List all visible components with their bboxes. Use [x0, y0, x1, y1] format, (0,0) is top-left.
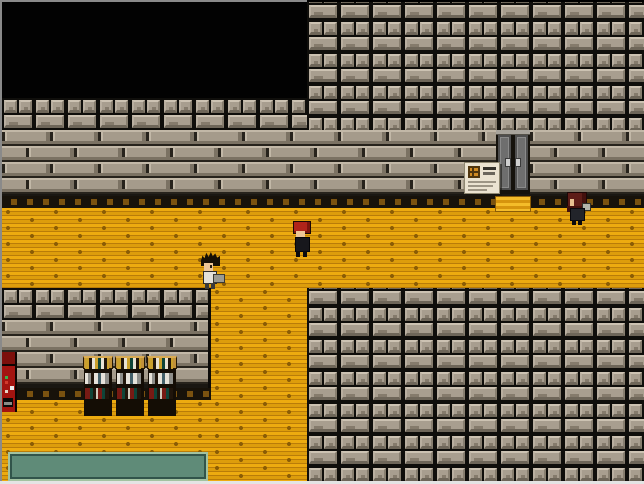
sign-text-line	[483, 172, 495, 175]
double-door[interactable]	[496, 130, 530, 194]
npc-long-dark-red-hair[interactable]	[565, 192, 590, 227]
book-row	[149, 373, 173, 384]
sign-text-line	[468, 189, 487, 191]
book-row	[117, 358, 141, 369]
book-row	[85, 388, 109, 399]
bookshelf[interactable]	[115, 356, 145, 416]
vending-label	[10, 386, 14, 390]
sign-text-line	[468, 181, 496, 183]
door-handle-icon	[515, 158, 521, 167]
book-row	[149, 358, 173, 369]
wood-floor-hallway	[2, 208, 644, 288]
wood-floor-corridor	[211, 288, 307, 481]
book-row	[149, 388, 173, 399]
notice-board[interactable]	[464, 162, 500, 194]
green-table[interactable]	[8, 452, 208, 481]
baseboard-main	[2, 196, 644, 208]
window-border-top	[0, 0, 307, 2]
book-row	[85, 373, 109, 384]
npc-leg	[211, 283, 215, 289]
npc-leg	[572, 220, 576, 225]
wall-top-tiles-left	[2, 98, 307, 130]
ceiling-tiles-bottom-right	[307, 288, 644, 481]
npc-leg	[296, 251, 300, 257]
book-row	[117, 388, 141, 399]
npc-red-hair[interactable]	[291, 221, 312, 258]
npc-eye	[210, 265, 212, 268]
wall-top-tiles-bottom-left	[2, 288, 211, 320]
npc-face	[570, 199, 574, 206]
green-led-icon	[5, 376, 8, 379]
brick-wall-main	[2, 130, 644, 196]
bookshelf[interactable]	[147, 356, 177, 416]
game-screen	[0, 0, 644, 484]
npc-spiky-black-hair[interactable]	[199, 252, 224, 290]
sign-text-line	[483, 167, 496, 170]
vending-tray	[4, 402, 12, 405]
door-handle-icon	[505, 158, 511, 167]
door-mat	[495, 196, 531, 212]
npc-leg	[303, 251, 307, 257]
ceiling-tiles-top-right	[307, 2, 644, 130]
npc-body	[295, 237, 310, 252]
dark-void-room	[2, 2, 307, 98]
book-row	[117, 373, 141, 384]
window-border-left	[0, 0, 2, 484]
npc-leg	[205, 283, 209, 289]
window-grid-icon	[468, 166, 480, 178]
npc-leg	[578, 220, 582, 225]
sign-text-line	[468, 185, 493, 187]
book-row	[85, 358, 109, 369]
npc-held-item	[213, 274, 225, 283]
vending-machine-top	[2, 352, 15, 366]
vending-machine[interactable]	[2, 352, 17, 412]
red-led-icon	[5, 381, 8, 384]
vending-label	[5, 390, 8, 393]
bookshelf[interactable]	[83, 356, 113, 416]
